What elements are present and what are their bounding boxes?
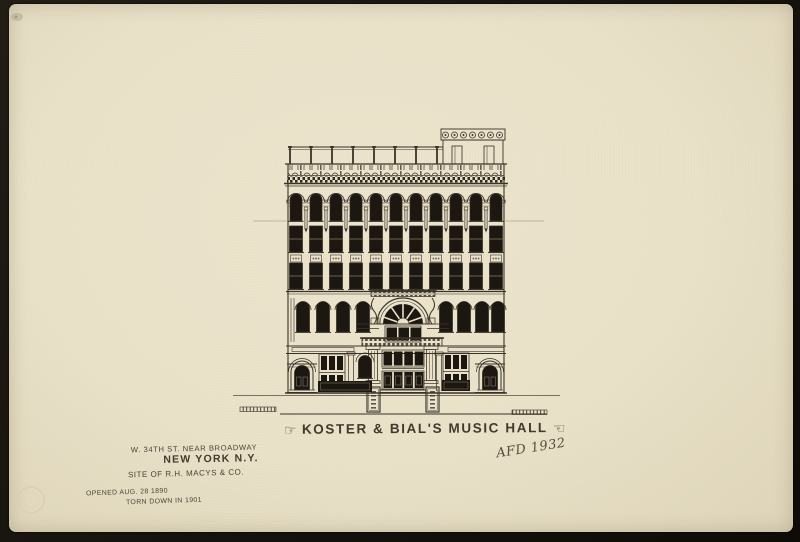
- title-caption: ☞ KOSTER & BIAL'S MUSIC HALL ☜: [284, 419, 546, 438]
- building-illustration: [0, 0, 800, 542]
- manicule-left-pointing-icon: ☜: [553, 420, 566, 436]
- page-title: KOSTER & BIAL'S MUSIC HALL: [302, 420, 548, 437]
- manicule-right-pointing-icon: ☞: [284, 422, 297, 438]
- address-line-2: NEW YORK N.Y.: [150, 452, 272, 466]
